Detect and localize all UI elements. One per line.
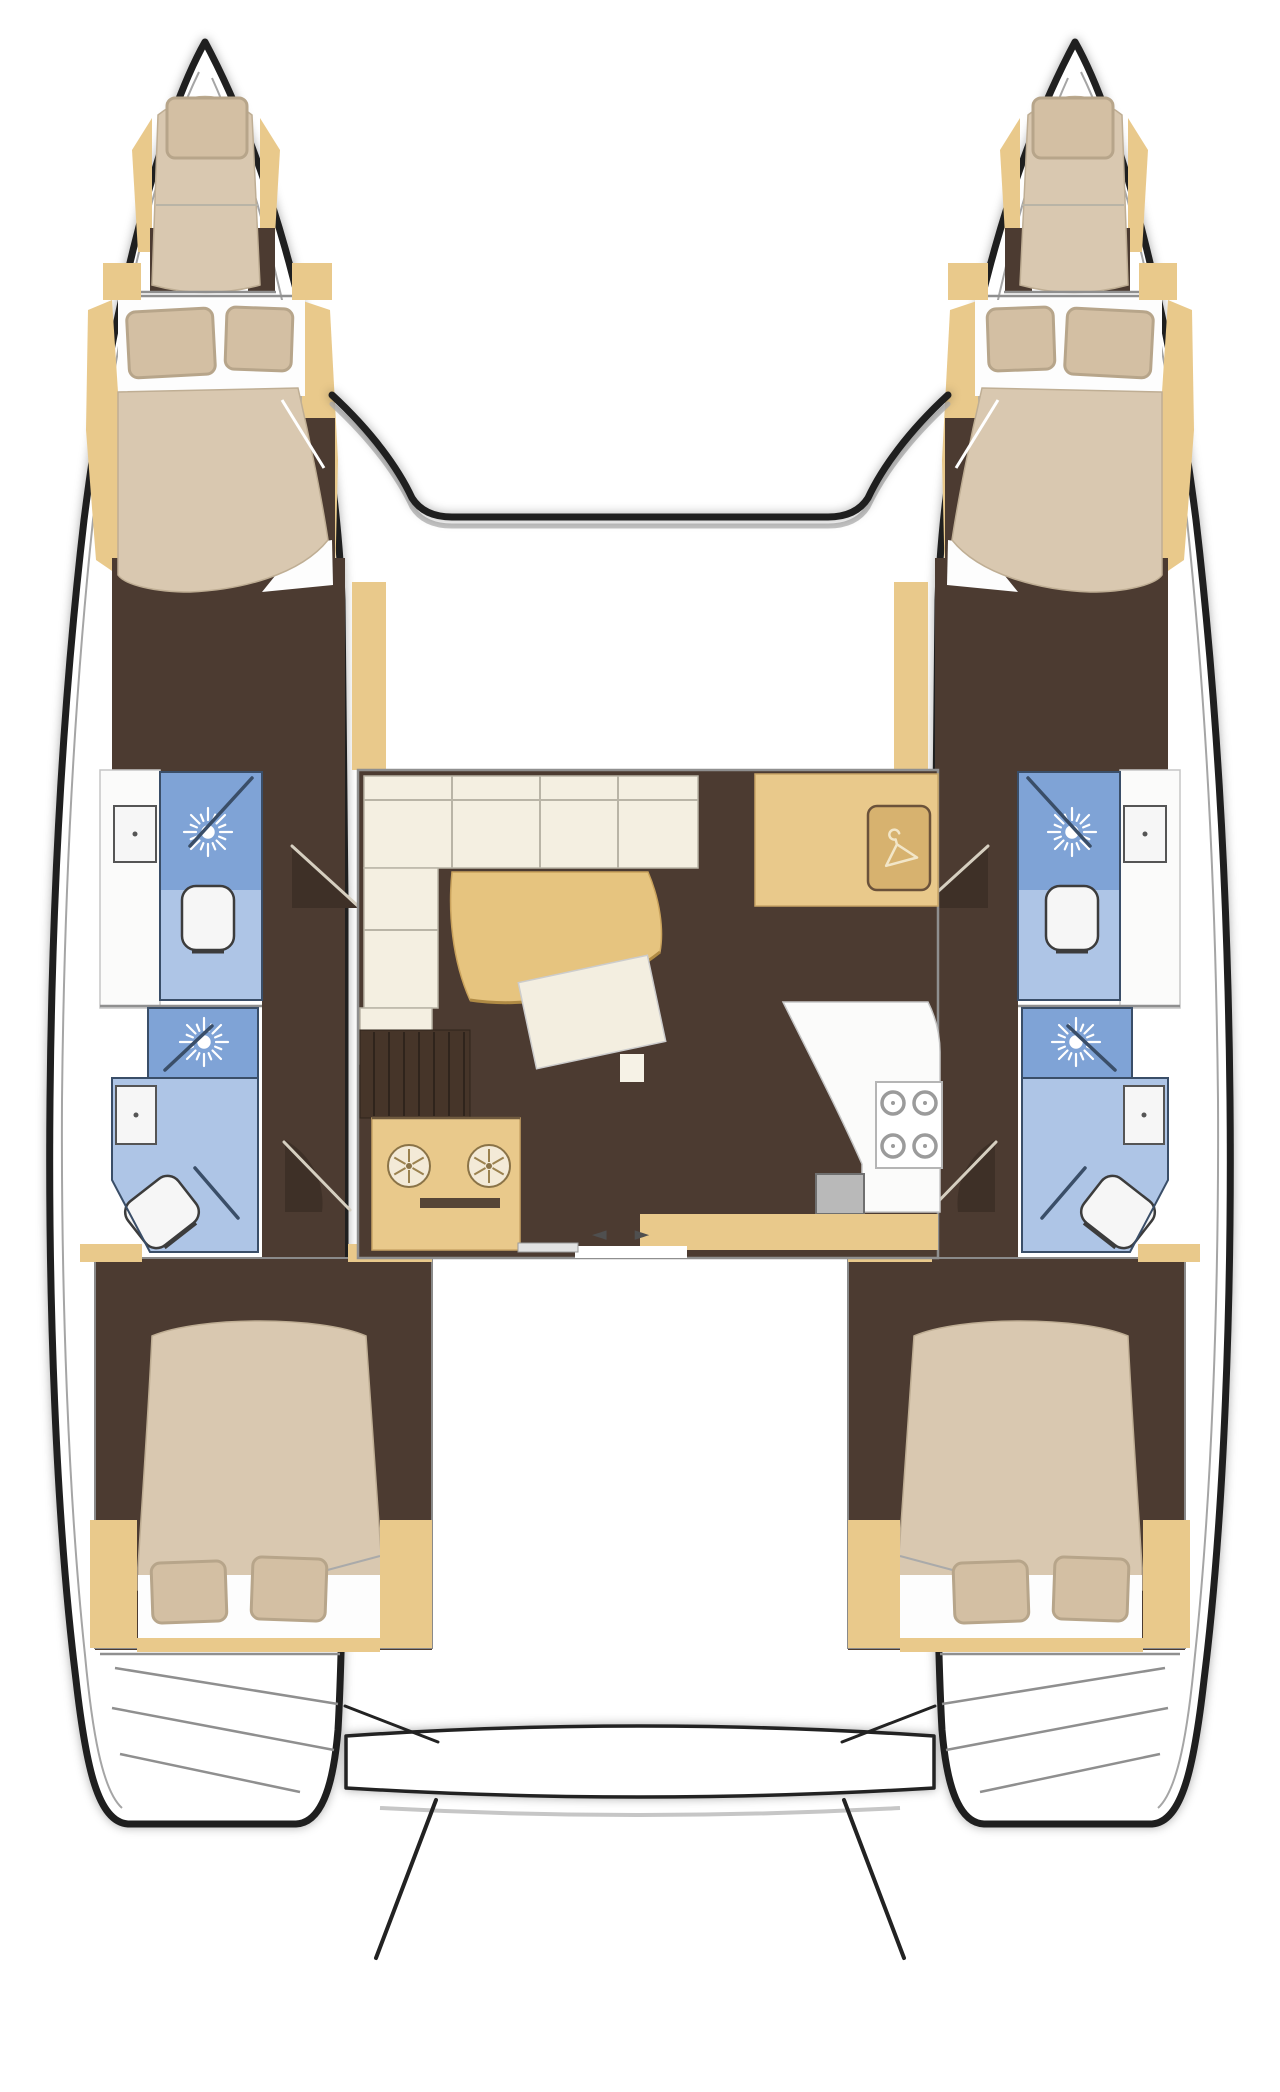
port-fwdcabin-pillow-left	[126, 308, 215, 378]
galley-aft-cabinet-band	[640, 1214, 938, 1250]
aft-bench-shadow	[380, 1808, 900, 1815]
stbd-aftcabin-sill	[900, 1638, 1143, 1652]
stbd-inner-gunwale	[894, 582, 928, 770]
port-fwdcabin-pillow-right	[225, 307, 293, 371]
foredeck-beam	[332, 395, 948, 770]
stbd-aftcabin-rail-left	[848, 1520, 900, 1648]
port-fwdbath-toilet	[182, 886, 234, 950]
stbd-forepeak-pillow	[1033, 98, 1113, 158]
stove-burner-dot-1	[891, 1101, 895, 1105]
port-inner-gunwale	[352, 582, 386, 770]
stbd-aftcabin-rail-right	[1143, 1520, 1190, 1648]
door-opening	[575, 1246, 687, 1258]
port-forward-bathroom	[100, 770, 262, 1008]
stbd-fwdbath-toilet	[1046, 886, 1098, 950]
port-fwdbath-shower-rose-icon	[184, 808, 232, 856]
stbd-fwdcabin-pillow-right	[1064, 308, 1153, 378]
stbd-fwdbath-shower-rose-icon	[1048, 808, 1096, 856]
port-fwdbath-drain	[133, 832, 138, 837]
galley-sink	[816, 1174, 864, 1214]
stove-burner-dot-2	[923, 1101, 927, 1105]
walkway-line-starboard	[844, 1800, 904, 1958]
port-bulkhead-block-right	[292, 263, 332, 300]
stbd-aftcabin-lintel-right	[1138, 1244, 1200, 1262]
round-sink-left	[388, 1145, 430, 1187]
port-aftcabin-sill	[137, 1638, 380, 1652]
stove-burner-dot-4	[923, 1144, 927, 1148]
sink-cabinet-slot	[420, 1198, 500, 1208]
port-aftcabin-pillow-left	[151, 1561, 227, 1624]
port-aftcabin-rail-left	[90, 1520, 137, 1648]
door-slide-arrows: ◄ ►	[592, 1223, 660, 1245]
stbd-fwdcabin-pillow-left	[987, 307, 1055, 371]
saloon: ◄ ►	[358, 770, 942, 1258]
round-sink-right	[468, 1145, 510, 1187]
saloon-wardrobe	[868, 806, 930, 890]
stbd-aftcabin-pillow-right	[1053, 1557, 1129, 1622]
stbd-fwdcabin-blanket	[952, 388, 1162, 592]
cockpit-stern	[345, 1706, 935, 1958]
port-aftcabin-lintel-left	[80, 1244, 142, 1262]
door-leaf	[518, 1243, 578, 1252]
port-forepeak-pillow	[167, 98, 247, 158]
port-aftbath-shower-rose-icon	[180, 1018, 228, 1066]
starboard-forward-bathroom	[1018, 770, 1180, 1008]
stbd-aftcabin-pillow-left	[953, 1561, 1029, 1624]
starboard-forward-cabin	[935, 300, 1194, 774]
catamaran-floorplan: ◄ ►	[0, 0, 1280, 2092]
sofa-top-band	[364, 776, 698, 868]
walkway-line-port	[376, 1800, 436, 1958]
stbd-bulkhead-block-right	[1139, 263, 1177, 300]
aft-bench	[346, 1726, 934, 1797]
stove-burner-dot-3	[891, 1144, 895, 1148]
foredeck-beam-line	[332, 395, 948, 517]
port-fwdcabin-blanket	[118, 388, 328, 592]
saloon-louvered-unit	[360, 1030, 470, 1118]
port-aft-cabin	[80, 1244, 432, 1652]
sofa-left-band	[364, 868, 438, 1008]
stbd-aftbath-drain	[1142, 1113, 1147, 1118]
starboard-aft-cabin	[848, 1244, 1200, 1652]
port-aftbath-drain	[134, 1113, 139, 1118]
port-aftcabin-rail-right	[380, 1520, 432, 1648]
port-bulkhead-block-left	[103, 263, 141, 300]
stbd-fwdbath-drain	[1143, 832, 1148, 837]
saloon-small-stool	[620, 1054, 644, 1082]
stbd-aftbath-shower-rose-icon	[1052, 1018, 1100, 1066]
port-forward-cabin	[86, 300, 345, 774]
stbd-bulkhead-block-left	[948, 263, 988, 300]
port-aftcabin-pillow-right	[251, 1557, 327, 1622]
floorplan-svg: ◄ ►	[0, 0, 1280, 2092]
